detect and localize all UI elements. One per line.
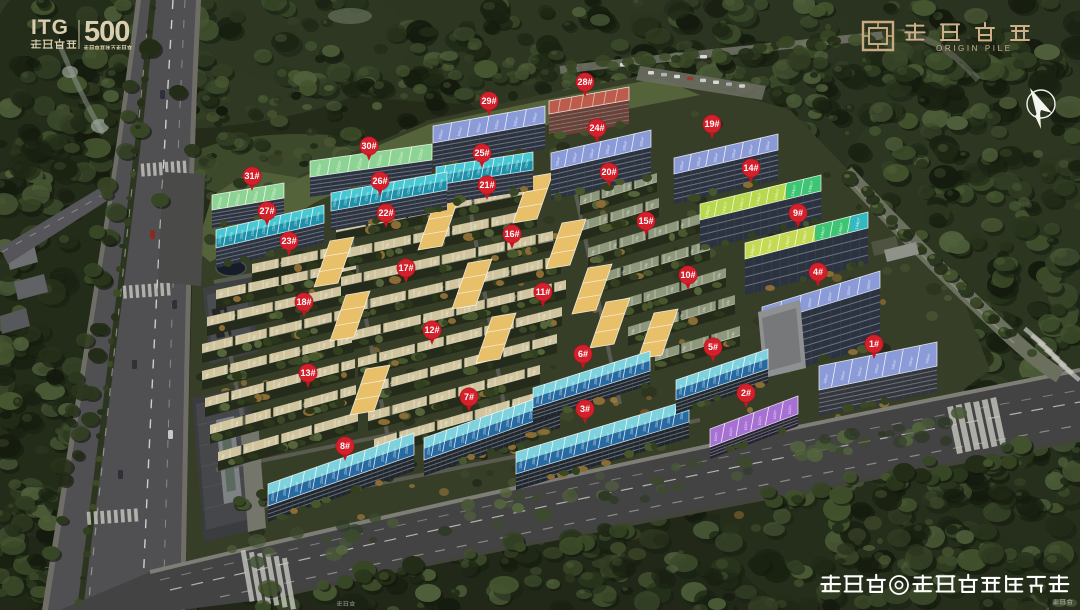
svg-text:162m: 162m <box>714 432 719 441</box>
svg-text:162m: 162m <box>788 405 793 414</box>
svg-text:162m: 162m <box>744 421 749 430</box>
svg-text:162m: 162m <box>729 427 734 436</box>
svg-text:162m: 162m <box>773 410 778 419</box>
svg-text:162m: 162m <box>758 416 763 425</box>
